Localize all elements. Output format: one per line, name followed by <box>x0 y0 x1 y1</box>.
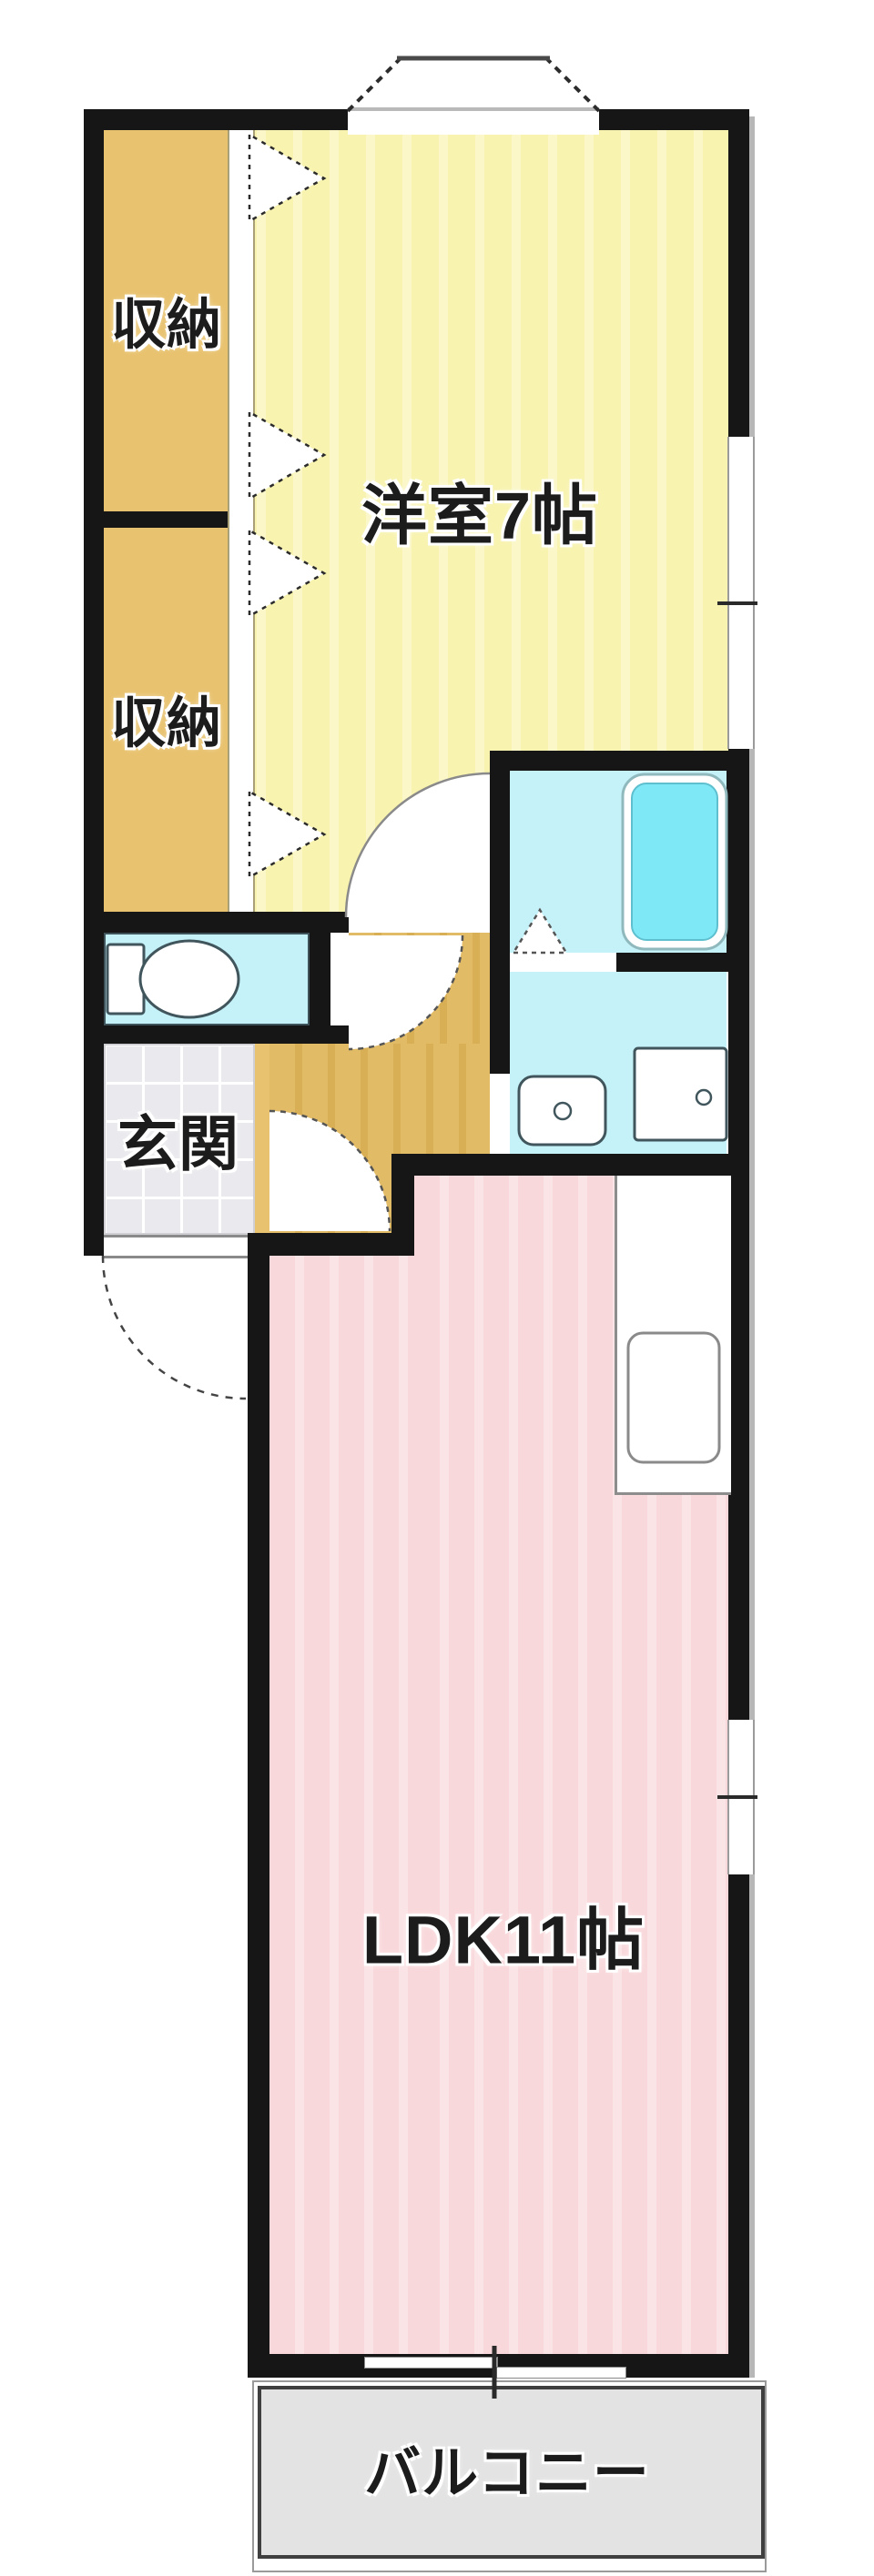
label-bedroom: 洋室7帖 <box>361 462 598 558</box>
label-closet-upper: 収納 <box>111 281 222 360</box>
bedroom-door-swing-arc <box>346 773 490 917</box>
bathtub-icon <box>623 774 727 949</box>
label-balcony: バルコニー <box>364 2427 650 2509</box>
label-closet-lower: 収納 <box>111 680 222 759</box>
washing-machine-pan-icon <box>635 1048 727 1140</box>
hall-door-swing-arc <box>269 1111 390 1231</box>
label-ldk: LDK11帖 <box>362 1886 645 1984</box>
toilet-door-swing-arc <box>349 935 462 1049</box>
floor-plan: 収納 洋室7帖 収納 玄関 LDK11帖 バルコニー <box>0 0 874 2576</box>
kitchen-sink-icon <box>628 1333 719 1462</box>
bay-window-icon <box>348 58 599 111</box>
folding-door-icon <box>249 135 324 877</box>
label-entrance: 玄関 <box>117 1096 239 1183</box>
entrance-door-swing-arc <box>103 1256 246 1399</box>
plan-symbols <box>0 0 874 2576</box>
washbasin-icon <box>519 1076 605 1145</box>
bath-folding-door-icon <box>513 910 566 953</box>
toilet-icon <box>107 941 239 1017</box>
